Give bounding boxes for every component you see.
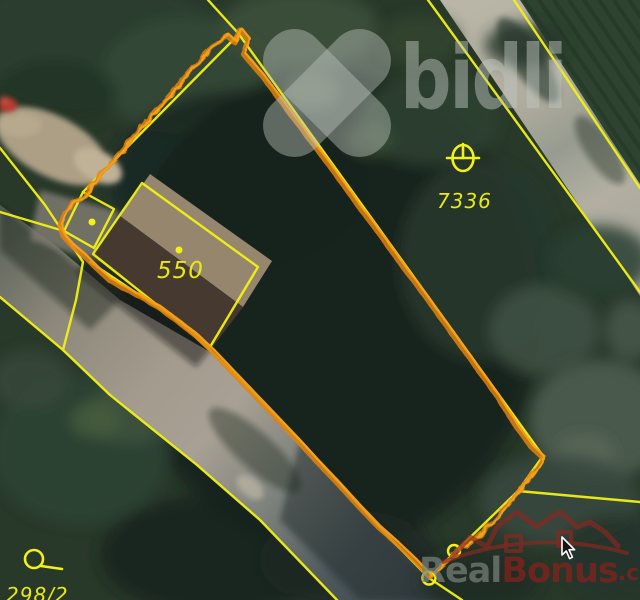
map-viewport[interactable]: 550 7336 298/2 bidli RealBonus.cz (0, 0, 640, 600)
mouse-cursor (0, 0, 640, 600)
